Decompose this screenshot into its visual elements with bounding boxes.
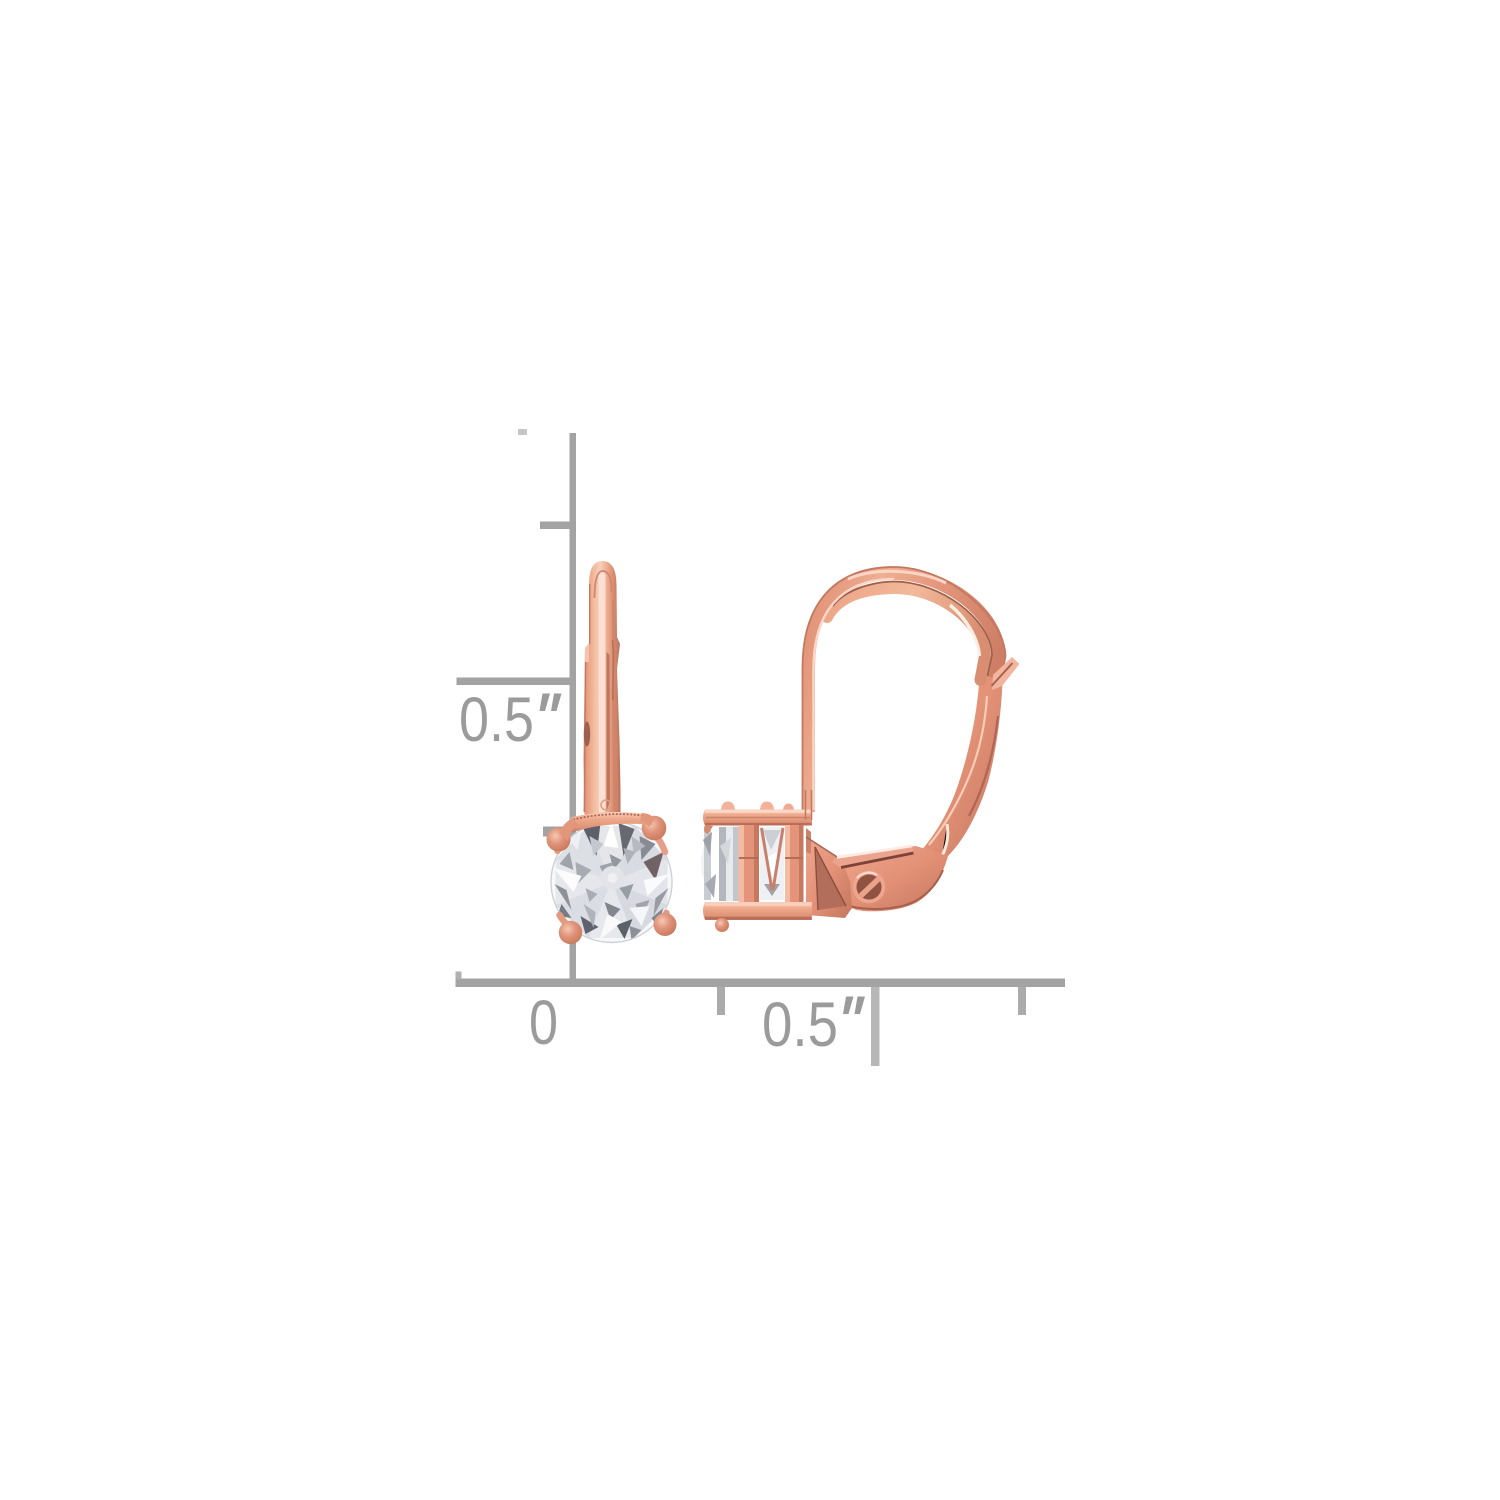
svg-text:0.5: 0.5 — [762, 990, 838, 1060]
svg-text:0: 0 — [529, 988, 558, 1058]
svg-text:0.5: 0.5 — [459, 685, 534, 755]
